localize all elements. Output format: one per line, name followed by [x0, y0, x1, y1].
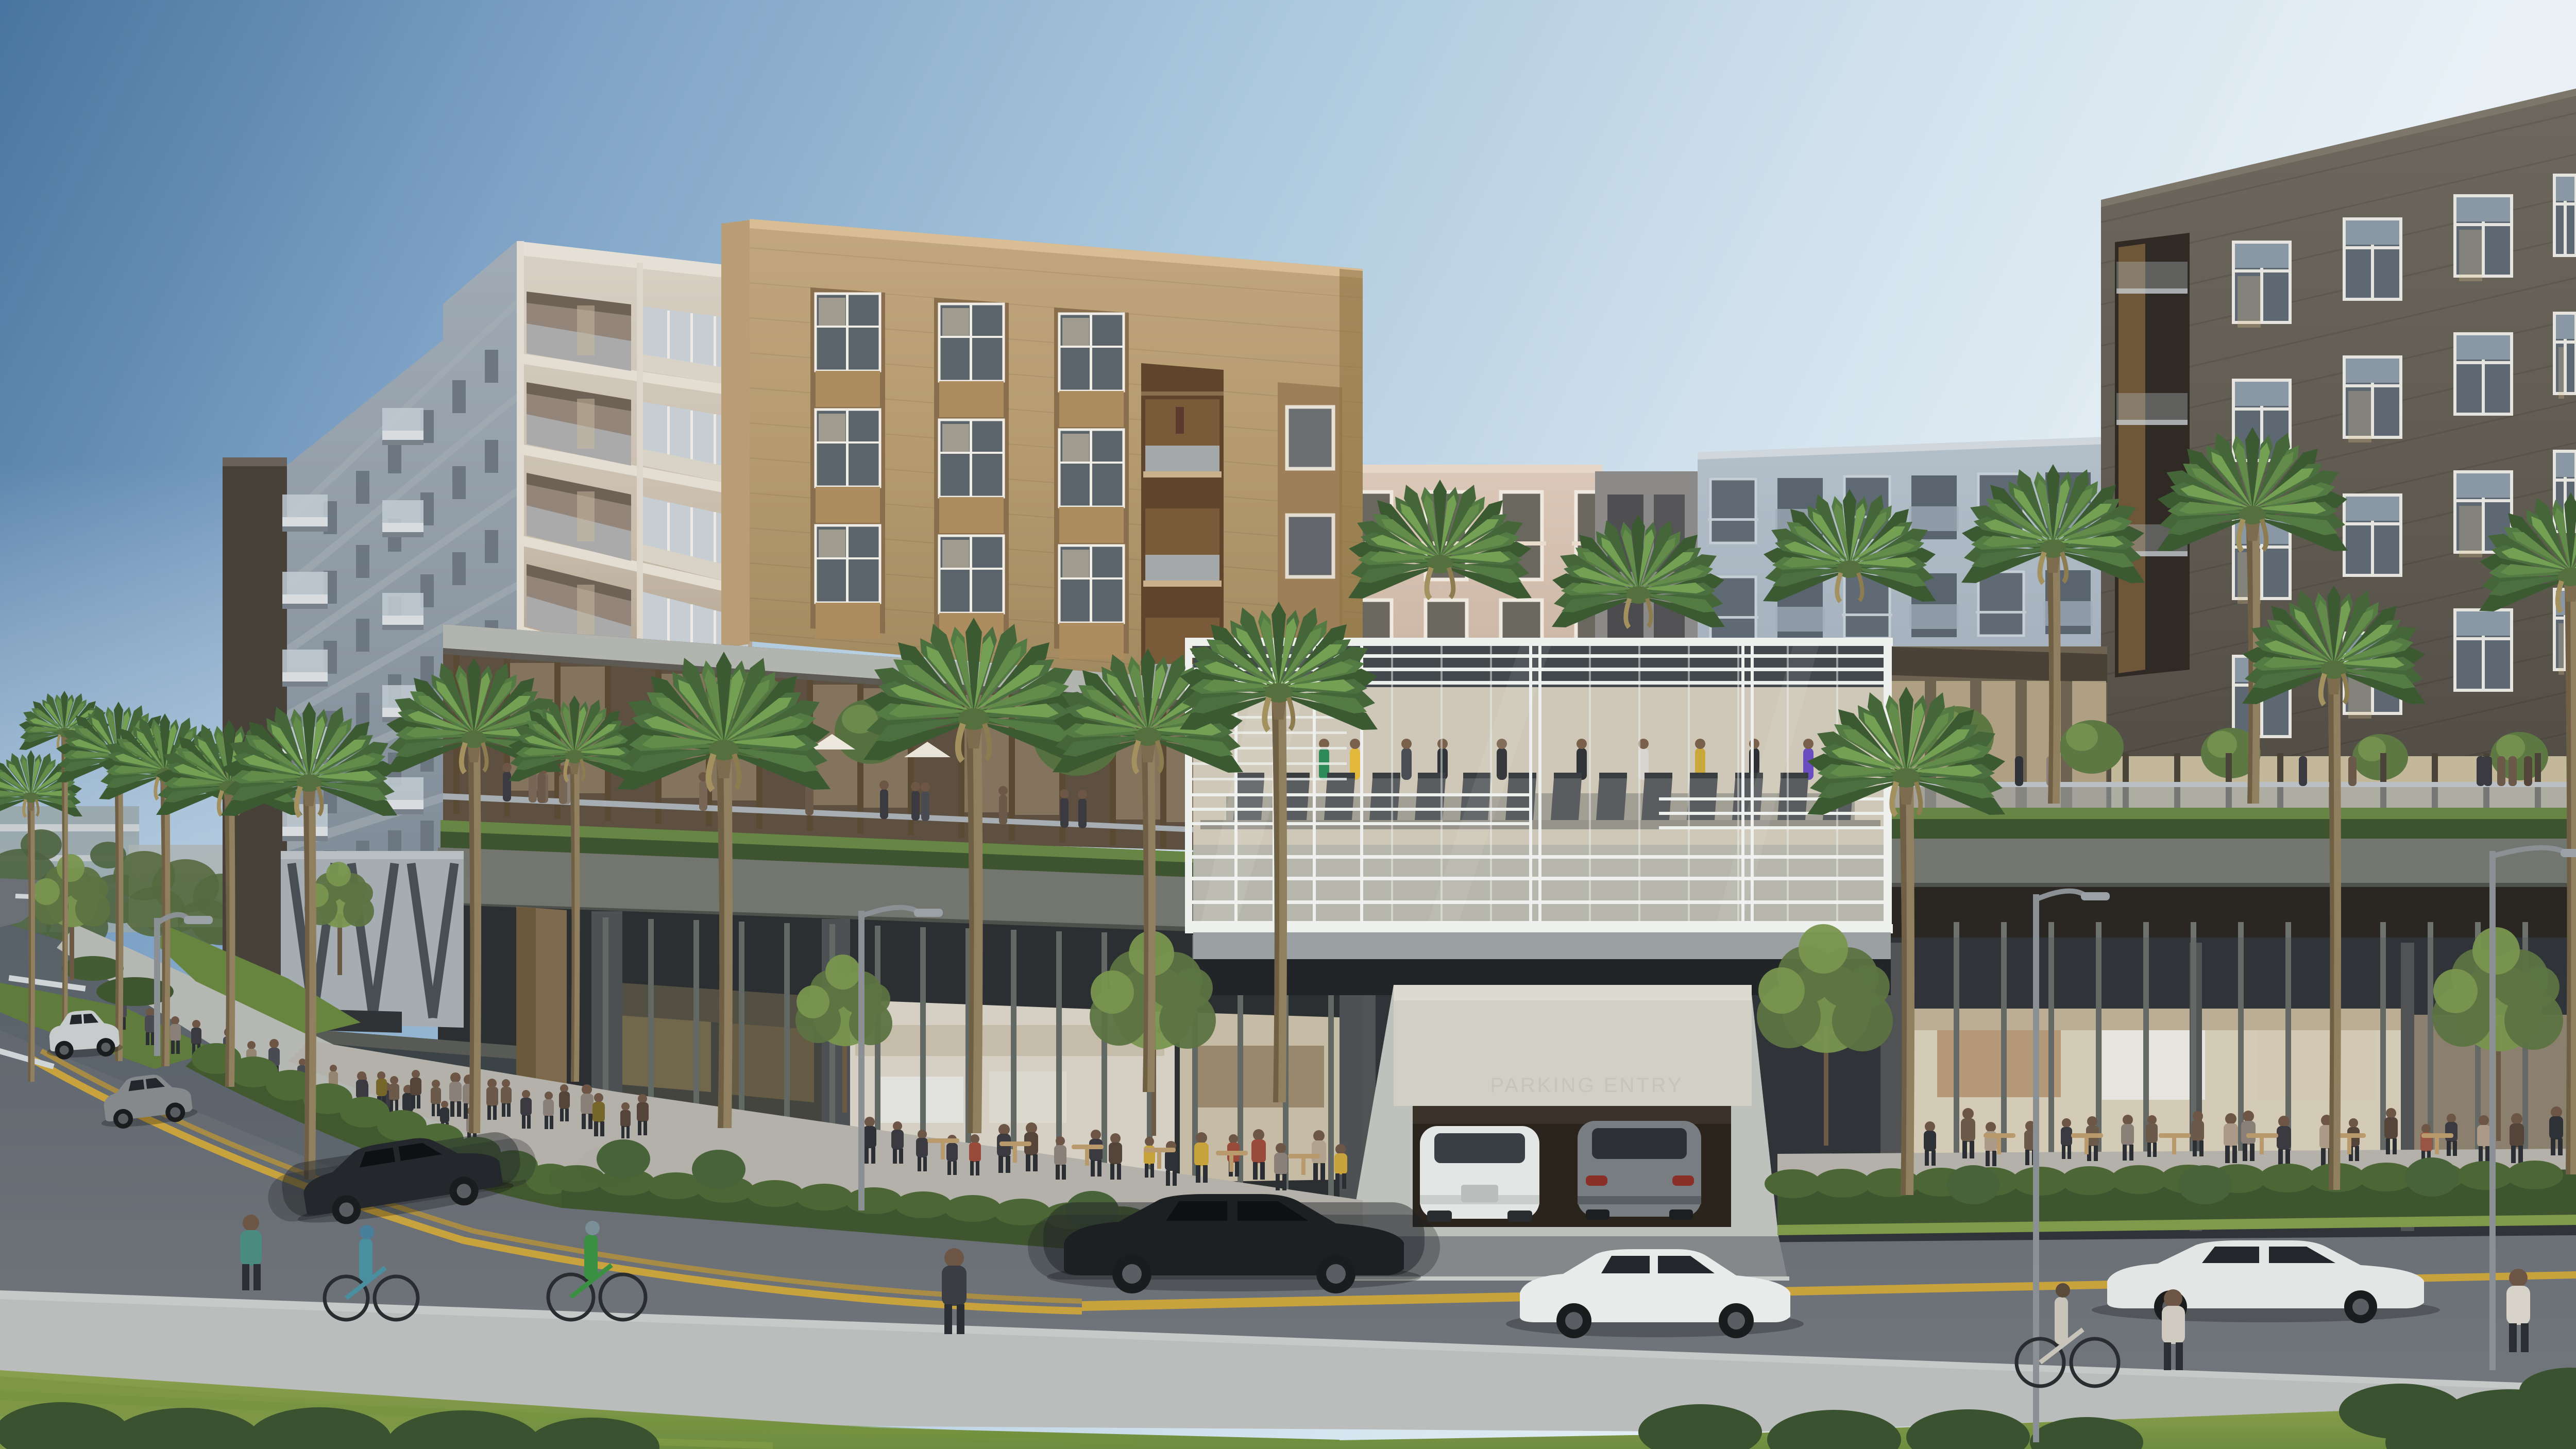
- svg-text:PARKING ENTRY: PARKING ENTRY: [1490, 1074, 1683, 1097]
